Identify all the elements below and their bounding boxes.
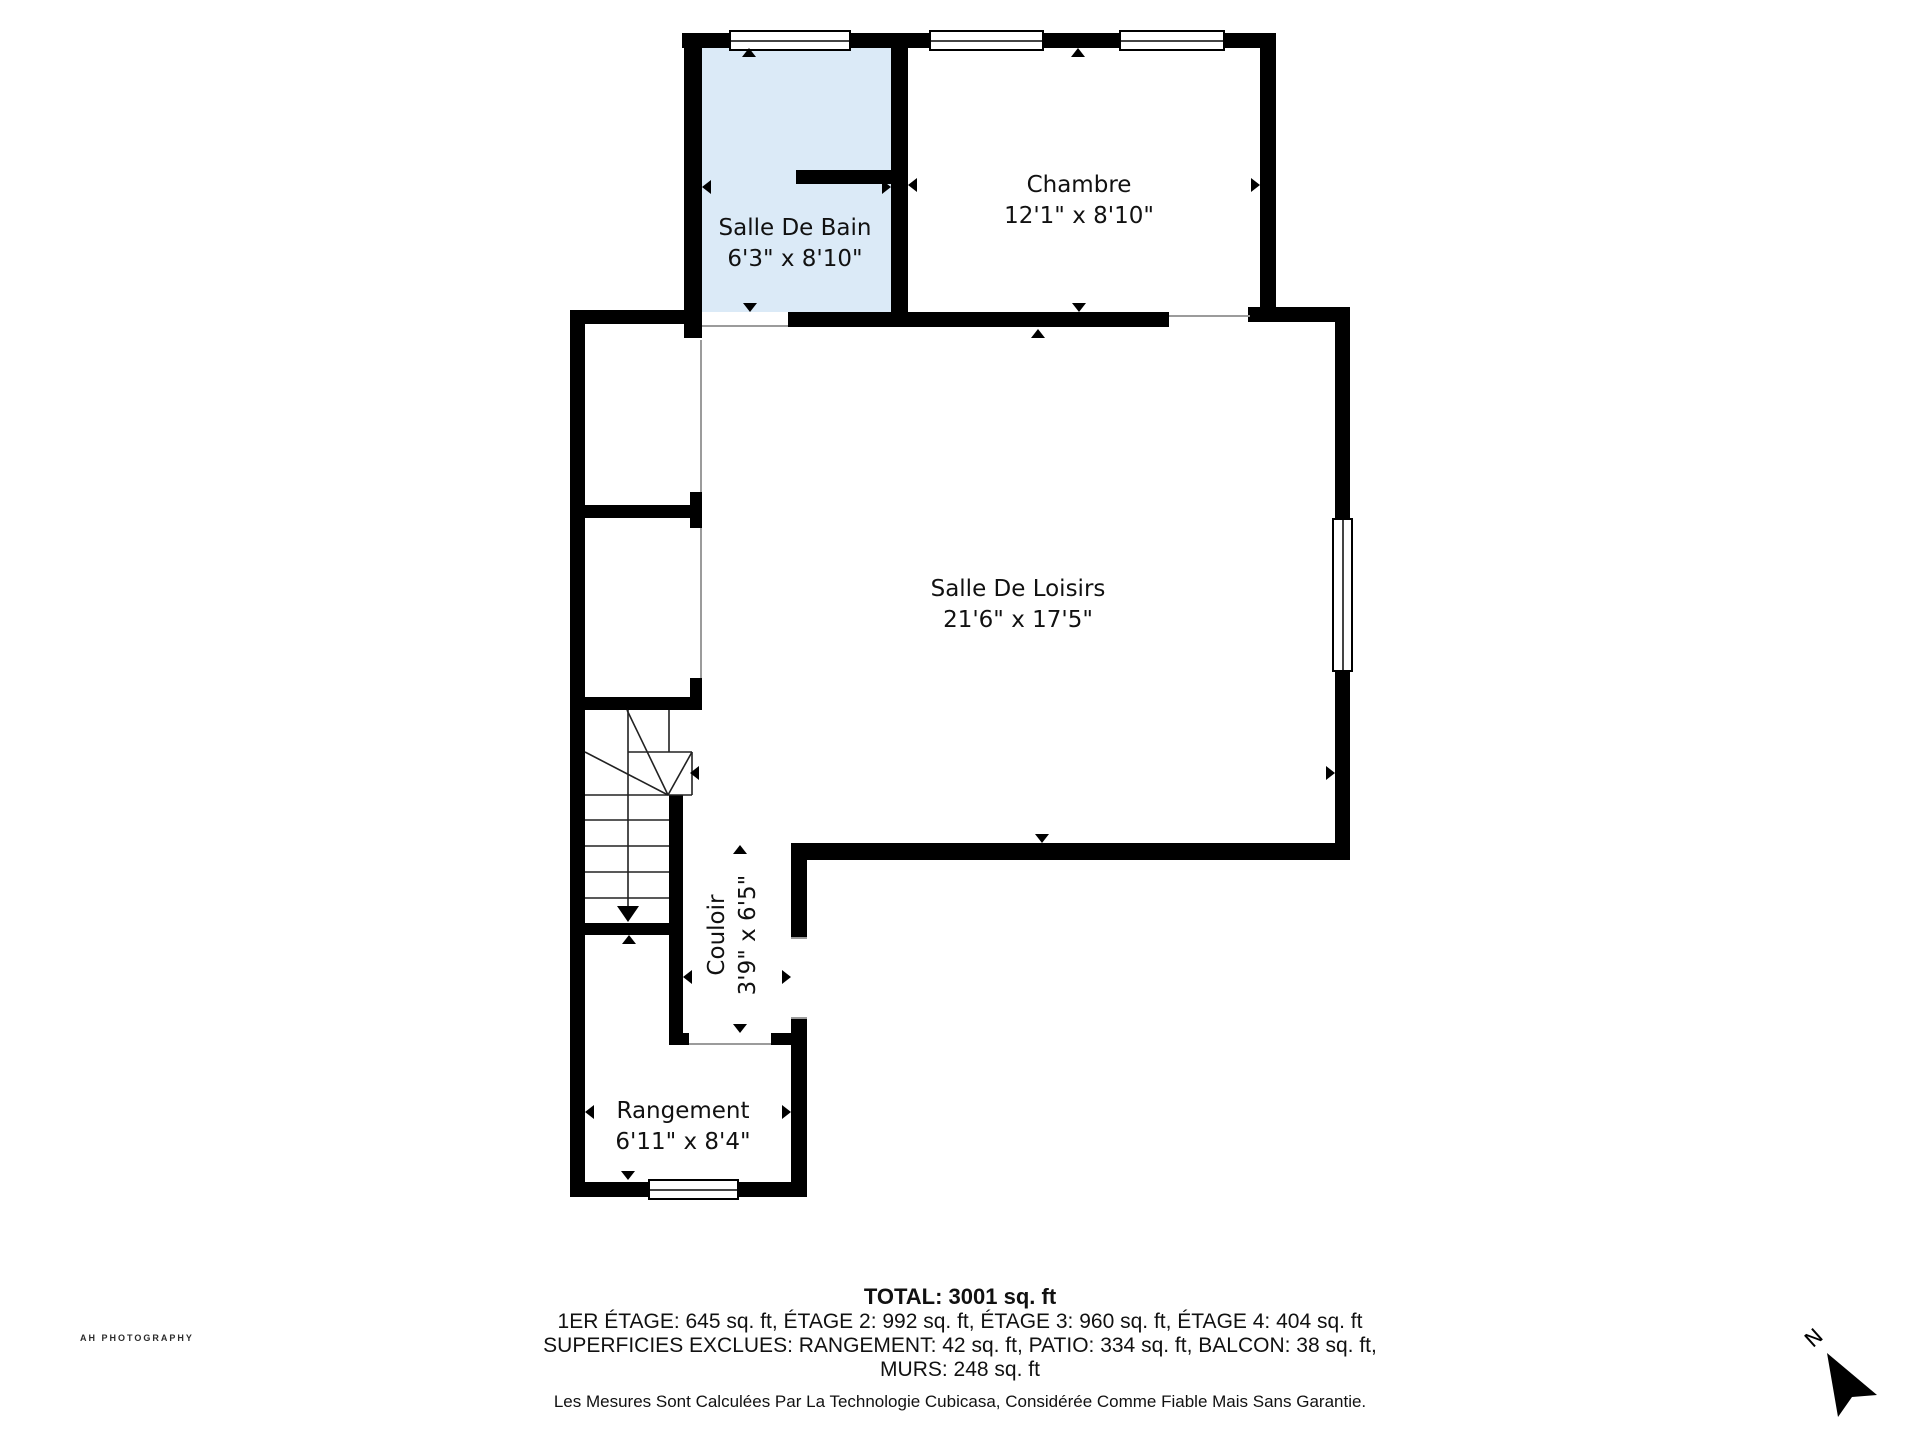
door-threshold [702, 325, 788, 327]
door-threshold [791, 937, 807, 939]
total-area-text: TOTAL: 3001 sq. ft [0, 1284, 1920, 1310]
measure-arrow [1035, 834, 1049, 843]
excluded-areas-text: SUPERFICIES EXCLUES: RANGEMENT: 42 sq. f… [0, 1334, 1920, 1358]
floor-plan-page: Salle De Bain 6'3" x 8'10" Chambre 12'1"… [0, 0, 1920, 1440]
room-name: Salle De Loisirs [868, 574, 1168, 605]
wall [585, 505, 690, 518]
room-name: Rangement [568, 1096, 798, 1127]
room-dimensions: 6'11" x 8'4" [568, 1127, 798, 1158]
window-pane [650, 1189, 737, 1191]
room-label-rangement: Rangement 6'11" x 8'4" [568, 1096, 798, 1158]
wall [570, 310, 702, 324]
window-pane [931, 40, 1042, 42]
floor-areas-text: 1ER ÉTAGE: 645 sq. ft, ÉTAGE 2: 992 sq. … [0, 1310, 1920, 1334]
wall [690, 678, 702, 710]
opening-line [700, 340, 702, 492]
wall [796, 170, 891, 184]
window-pane [1121, 40, 1223, 42]
window-pane [1342, 520, 1344, 670]
wall [771, 1033, 807, 1045]
room-name: Chambre [944, 170, 1214, 201]
wall [570, 923, 683, 935]
wall [1248, 307, 1350, 322]
measure-arrow [690, 766, 699, 780]
measure-arrow [683, 970, 692, 984]
door-threshold [791, 1017, 807, 1019]
stairs-direction-arrow [617, 906, 639, 922]
room-dimensions: 6'3" x 8'10" [680, 244, 910, 275]
room-dimensions: 12'1" x 8'10" [944, 201, 1214, 232]
wall [684, 48, 702, 338]
room-label-salle-de-loisirs: Salle De Loisirs 21'6" x 17'5" [868, 574, 1168, 636]
room-name: Couloir [702, 835, 733, 1035]
room-dimensions: 3'9" x 6'5" [733, 835, 764, 1035]
wall [585, 697, 702, 710]
wall [1260, 48, 1276, 312]
measure-arrow [622, 935, 636, 944]
wall [669, 795, 683, 1045]
room-name: Salle De Bain [680, 213, 910, 244]
room-label-salle-de-bain: Salle De Bain 6'3" x 8'10" [680, 213, 910, 275]
measure-arrow [743, 303, 757, 312]
room-dimensions: 21'6" x 17'5" [868, 605, 1168, 636]
room-label-couloir: Couloir 3'9" x 6'5" [702, 835, 764, 1035]
measure-arrow [1031, 329, 1045, 338]
disclaimer-block: Les Mesures Sont Calculées Par La Techno… [0, 1392, 1920, 1412]
wall [791, 843, 1350, 860]
window [1119, 30, 1225, 51]
wall [791, 860, 807, 938]
measure-arrow [908, 178, 917, 192]
door-threshold [1169, 315, 1250, 317]
measure-arrow [742, 48, 756, 57]
measure-arrow [782, 970, 791, 984]
wall [669, 1033, 689, 1045]
door-threshold [689, 1043, 771, 1045]
measure-arrow [882, 180, 891, 194]
measure-arrow [621, 1171, 635, 1180]
wall [788, 312, 1169, 327]
window [648, 1179, 739, 1200]
window [929, 30, 1044, 51]
disclaimer-text: Les Mesures Sont Calculées Par La Techno… [0, 1392, 1920, 1412]
measure-arrow [1072, 303, 1086, 312]
measure-arrow [1326, 766, 1335, 780]
window-pane [731, 40, 849, 42]
measure-arrow [702, 180, 711, 194]
photographer-watermark: AH PHOTOGRAPHY [80, 1333, 194, 1343]
room-label-chambre: Chambre 12'1" x 8'10" [944, 170, 1214, 232]
opening-line [700, 528, 702, 678]
window [1332, 518, 1353, 672]
measure-arrow [1071, 48, 1085, 57]
excluded-areas-text-2: MURS: 248 sq. ft [0, 1358, 1920, 1382]
summary-block: TOTAL: 3001 sq. ft 1ER ÉTAGE: 645 sq. ft… [0, 1284, 1920, 1382]
wall [570, 324, 585, 1197]
measure-arrow [1251, 178, 1260, 192]
wall [690, 492, 702, 528]
